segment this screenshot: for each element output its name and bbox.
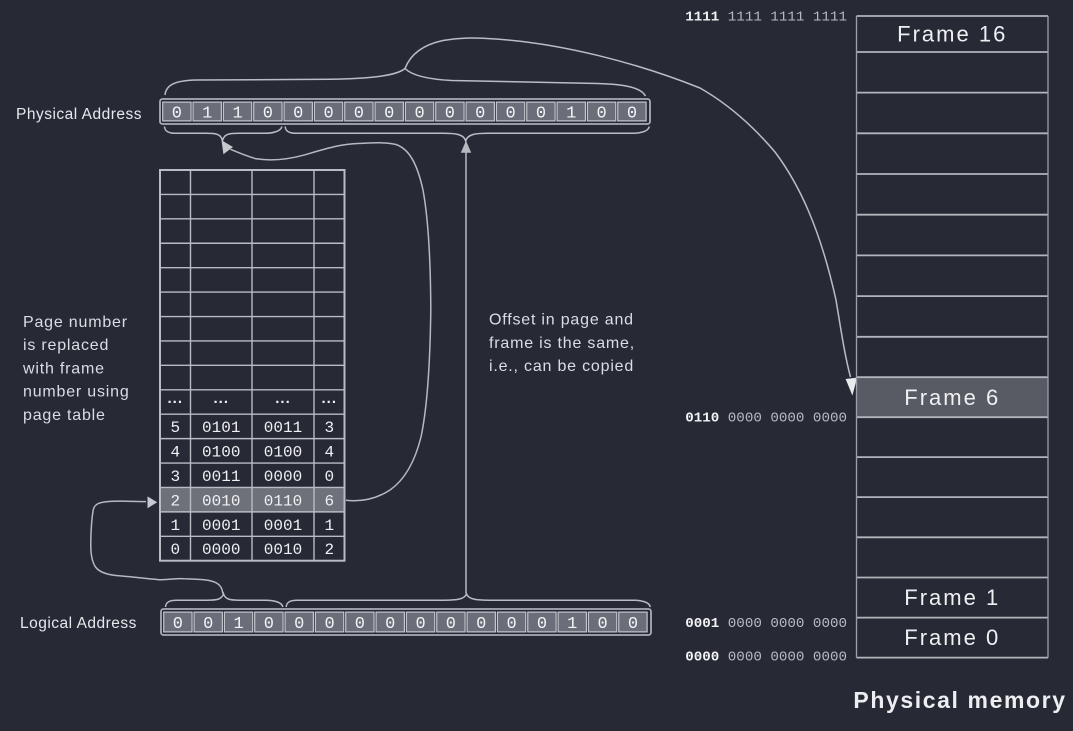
svg-text:0000: 0000 [202, 541, 240, 559]
svg-text:number using: number using [23, 384, 130, 401]
svg-text:0: 0 [475, 104, 485, 123]
svg-text:Frame 16: Frame 16 [897, 22, 1007, 47]
svg-text:4: 4 [170, 444, 180, 462]
svg-text:0: 0 [323, 104, 333, 123]
svg-text:page table: page table [23, 407, 106, 424]
svg-text:0: 0 [505, 104, 515, 123]
svg-text:0: 0 [627, 104, 637, 123]
svg-text:1: 1 [202, 104, 212, 123]
svg-text:1: 1 [324, 517, 334, 535]
svg-text:0: 0 [294, 615, 304, 634]
svg-text:0: 0 [264, 615, 274, 634]
svg-text:1: 1 [566, 104, 576, 123]
svg-text:0: 0 [203, 615, 213, 634]
svg-text:0: 0 [445, 104, 455, 123]
svg-text:0000 0000 0000 0000: 0000 0000 0000 0000 [685, 650, 847, 666]
svg-text:Logical Address: Logical Address [20, 615, 137, 632]
svg-text:2: 2 [170, 492, 180, 510]
svg-text:Physical Address: Physical Address [16, 106, 142, 123]
svg-text:0: 0 [172, 104, 182, 123]
svg-text:0: 0 [628, 615, 638, 634]
svg-text:1: 1 [233, 615, 243, 634]
svg-text:0: 0 [355, 615, 365, 634]
svg-text:0001 0000 0000 0000: 0001 0000 0000 0000 [685, 616, 847, 632]
svg-text:6: 6 [324, 492, 334, 510]
svg-text:0010: 0010 [202, 492, 240, 510]
svg-text:Offset in page and: Offset in page and [489, 312, 634, 329]
svg-text:Frame 1: Frame 1 [904, 585, 1000, 610]
svg-text:frame is the same,: frame is the same, [489, 335, 635, 352]
svg-text:0: 0 [170, 541, 180, 559]
svg-text:4: 4 [324, 444, 334, 462]
svg-text:0: 0 [446, 615, 456, 634]
svg-text:0: 0 [537, 615, 547, 634]
svg-text:0: 0 [384, 104, 394, 123]
svg-text:0011: 0011 [202, 468, 240, 486]
svg-text:0: 0 [476, 615, 486, 634]
svg-text:1: 1 [567, 615, 577, 634]
svg-text:0: 0 [324, 615, 334, 634]
svg-text:1111 1111 1111 1111: 1111 1111 1111 1111 [685, 10, 847, 26]
svg-text:5: 5 [170, 419, 180, 437]
svg-text:0011: 0011 [264, 419, 302, 437]
svg-text:0: 0 [263, 104, 273, 123]
svg-text:0: 0 [324, 468, 334, 486]
svg-text:0100: 0100 [264, 444, 302, 462]
svg-text:0: 0 [596, 104, 606, 123]
svg-text:...: ... [275, 390, 291, 407]
svg-text:0: 0 [414, 104, 424, 123]
svg-text:0: 0 [293, 104, 303, 123]
svg-text:2: 2 [324, 541, 334, 559]
svg-text:0010: 0010 [264, 541, 302, 559]
svg-text:0001: 0001 [202, 517, 240, 535]
svg-text:0: 0 [506, 615, 516, 634]
svg-text:i.e., can be copied: i.e., can be copied [489, 358, 634, 375]
svg-text:with frame: with frame [22, 360, 105, 377]
svg-text:0101: 0101 [202, 419, 240, 437]
svg-text:0: 0 [415, 615, 425, 634]
svg-text:3: 3 [170, 468, 180, 486]
svg-text:0: 0 [385, 615, 395, 634]
svg-text:Frame 6: Frame 6 [904, 385, 1000, 410]
svg-text:0100: 0100 [202, 444, 240, 462]
svg-text:3: 3 [324, 419, 334, 437]
svg-text:0: 0 [536, 104, 546, 123]
svg-text:0110 0000 0000 0000: 0110 0000 0000 0000 [685, 411, 847, 427]
svg-text:...: ... [167, 390, 183, 407]
svg-text:0000: 0000 [264, 468, 302, 486]
svg-text:is replaced: is replaced [23, 337, 109, 354]
svg-text:0: 0 [173, 615, 183, 634]
svg-text:0: 0 [354, 104, 364, 123]
svg-text:...: ... [213, 390, 229, 407]
svg-text:0001: 0001 [264, 517, 302, 535]
svg-text:...: ... [321, 390, 337, 407]
svg-text:Physical memory: Physical memory [853, 687, 1066, 713]
svg-text:1: 1 [170, 517, 180, 535]
svg-text:Page number: Page number [23, 314, 128, 331]
svg-text:Frame 0: Frame 0 [904, 625, 1000, 650]
svg-text:0110: 0110 [264, 492, 302, 510]
svg-text:1: 1 [232, 104, 242, 123]
svg-text:0: 0 [597, 615, 607, 634]
